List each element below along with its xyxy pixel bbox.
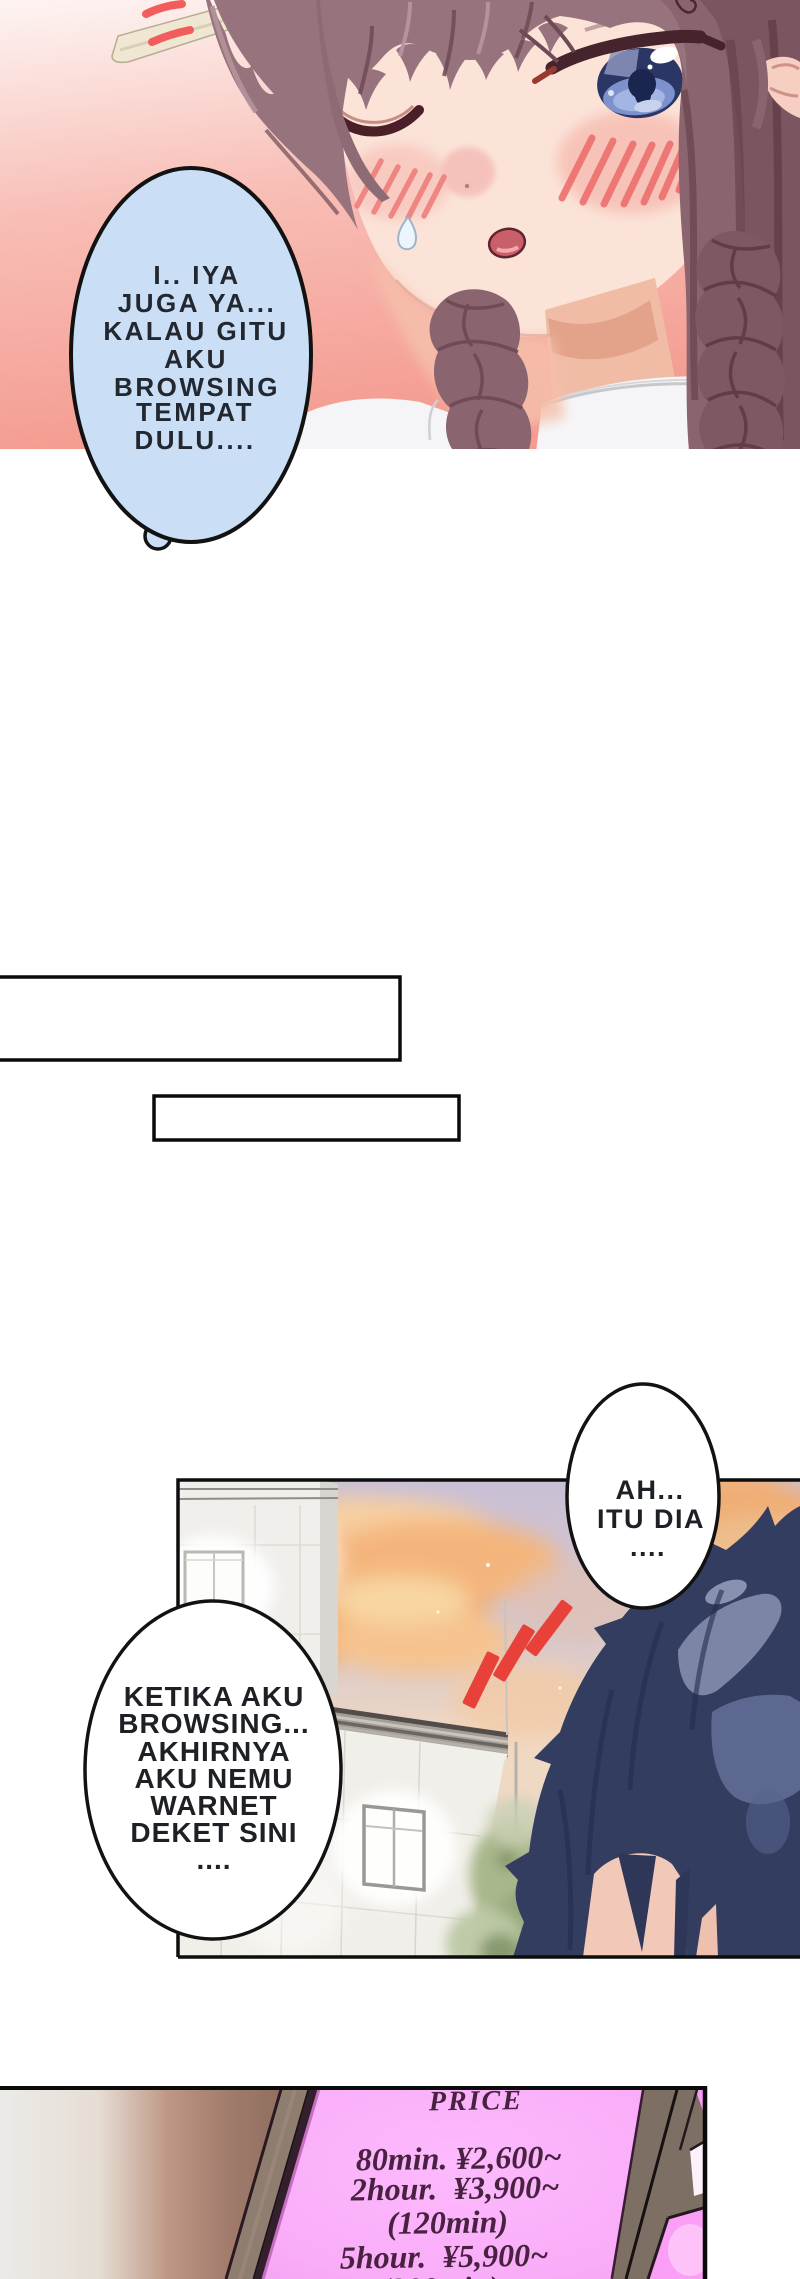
- svg-text:BROWSING...: BROWSING...: [118, 1708, 309, 1739]
- svg-text:(120min): (120min): [387, 2203, 508, 2241]
- svg-text:ITU DIA: ITU DIA: [597, 1504, 705, 1534]
- svg-text:AH...: AH...: [615, 1475, 684, 1505]
- svg-text:2hour. ¥3,900~: 2hour. ¥3,900~: [350, 2169, 560, 2208]
- svg-text:....: ....: [630, 1532, 666, 1562]
- svg-text:....: ....: [196, 1844, 231, 1875]
- svg-text:KALAU GITU: KALAU GITU: [103, 316, 288, 346]
- svg-text:(300min): (300min): [379, 2269, 500, 2279]
- svg-text:TEMPAT: TEMPAT: [136, 397, 254, 427]
- svg-text:I.. IYA: I.. IYA: [153, 260, 240, 290]
- svg-text:JUGA YA...: JUGA YA...: [118, 288, 276, 318]
- svg-text:AKU: AKU: [164, 344, 228, 374]
- svg-text:DULU....: DULU....: [134, 425, 255, 455]
